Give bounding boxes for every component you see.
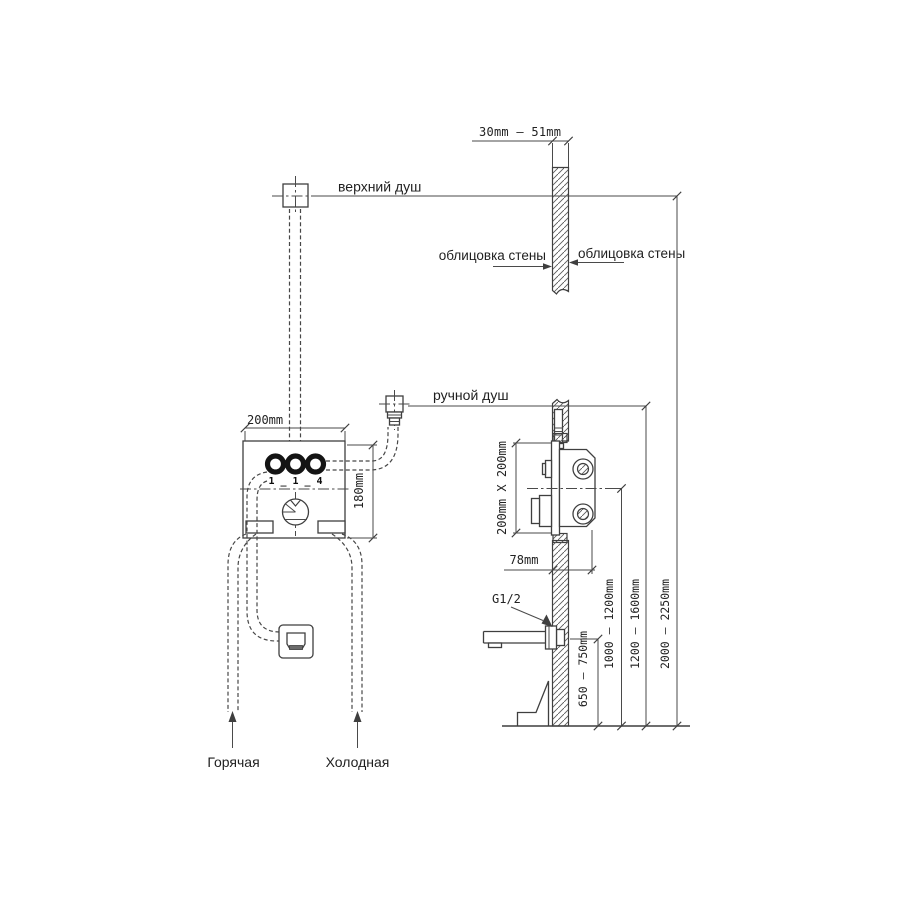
spout-flange [546, 626, 557, 649]
hand-shower-label: ручной душ [433, 387, 509, 403]
front-view: верхний душ 1_1_4 200mm [207, 176, 677, 770]
shower-installation-drawing: верхний душ 1_1_4 200mm [0, 0, 900, 900]
cold-label: Холодная [326, 754, 390, 770]
dim-height-hand-shower: 1200 — 1600mm [628, 402, 650, 730]
inlet-cold-port [318, 521, 345, 533]
diverter-cartridge [283, 499, 309, 525]
installation-diagram: верхний душ 1_1_4 200mm [0, 0, 900, 900]
dim-box-height: 180mm [347, 441, 377, 542]
wall-thickness-value: 30mm – 51mm [479, 125, 561, 139]
spout-side-view [484, 626, 565, 649]
valve-stem-lower [540, 496, 552, 527]
hot-inlet-arrow [229, 711, 237, 748]
height-hand-shower-value: 1200 — 1600mm [628, 579, 642, 669]
cladding-left-arrow [493, 263, 552, 270]
wall-upper-section [553, 168, 569, 295]
box-depth-value: 78mm [510, 553, 539, 567]
spout-aerator [489, 643, 502, 648]
dim-wall-thickness: 30mm – 51mm [472, 125, 573, 168]
cold-supply-pipe [332, 534, 352, 712]
hot-supply-pipe [228, 534, 246, 712]
dim-box-width: 200mm [241, 413, 349, 441]
upper-shower-label: верхний душ [338, 179, 421, 195]
box-height-value: 180mm [352, 473, 366, 509]
side-box-size-value: 200mm X 200mm [495, 441, 509, 535]
cladding-right-label: облицовка стены [578, 246, 685, 261]
mixer-box-side [527, 434, 608, 543]
dim-height-head-shower: 2000 — 2250mm [658, 192, 681, 730]
hot-label: Горячая [207, 754, 259, 770]
height-spout-value: 650 — 750mm [576, 631, 590, 707]
valve-stem-upper [546, 461, 552, 478]
side-view: 30mm – 51mm облицовка стены облицовка ст… [439, 125, 690, 730]
cladding-left-label: облицовка стены [439, 248, 546, 263]
head-shower-symbol [272, 176, 318, 215]
height-mixer-value: 1000 — 1200mm [602, 579, 616, 669]
cold-inlet-arrow [354, 711, 362, 748]
height-head-shower-value: 2000 — 2250mm [658, 579, 672, 669]
thread-callout: G1/2 [492, 592, 553, 627]
thread-value: G1/2 [492, 592, 521, 606]
spout-front-view [279, 625, 313, 658]
hand-shower-connector [379, 390, 411, 430]
box-width-value: 200mm [247, 413, 283, 427]
dim-height-mixer: 1000 — 1200mm [602, 484, 626, 730]
dim-box-depth: 78mm [504, 530, 596, 574]
dim-height-spout: 650 — 750mm [570, 631, 602, 730]
thread-arrowhead [542, 615, 553, 628]
shower-tray-edge [518, 681, 549, 726]
inlet-hot-port [246, 521, 273, 533]
